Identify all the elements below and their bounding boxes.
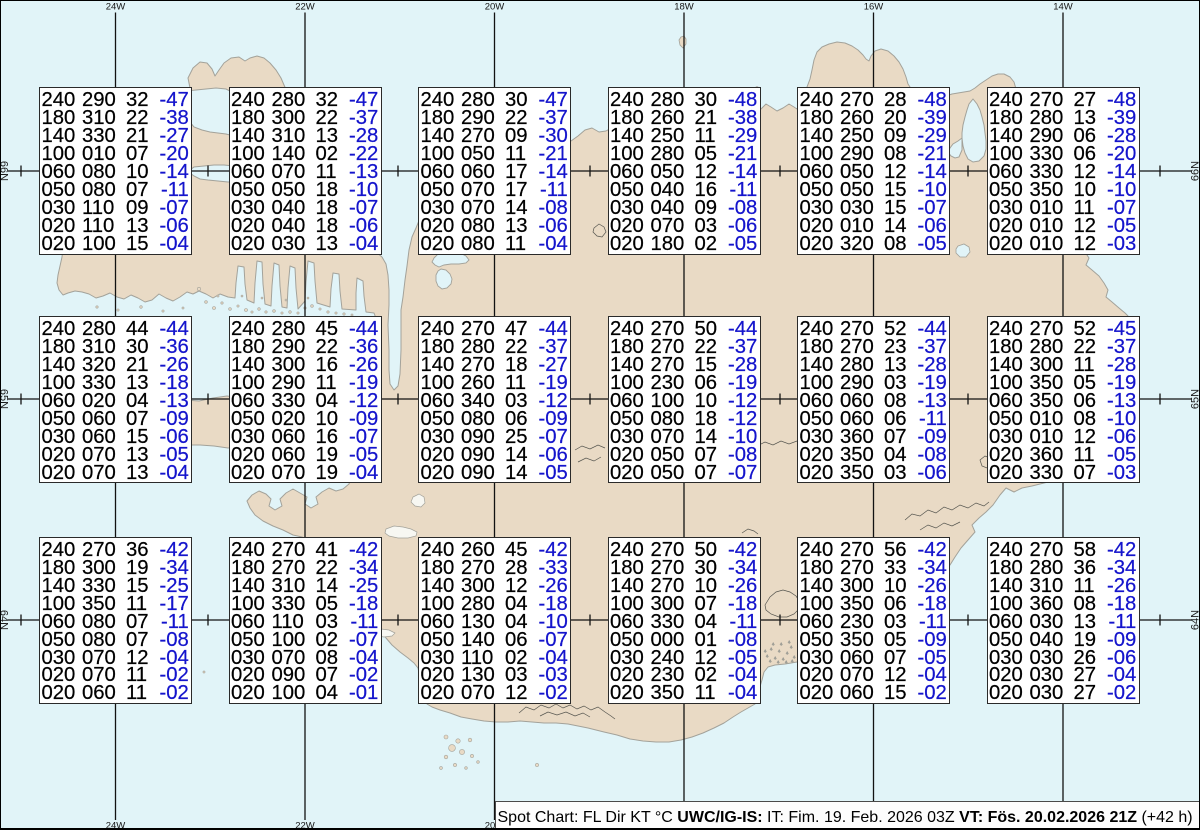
svg-text:18W: 18W: [674, 2, 694, 13]
svg-text:22W: 22W: [295, 2, 315, 13]
svg-text:24W: 24W: [106, 2, 126, 13]
svg-text:14W: 14W: [1053, 2, 1073, 13]
svg-text:64N: 64N: [0, 610, 10, 630]
svg-text:16W: 16W: [864, 2, 884, 13]
svg-text:20W: 20W: [485, 2, 505, 13]
svg-text:65N: 65N: [0, 389, 10, 409]
svg-text:66N: 66N: [0, 161, 10, 181]
